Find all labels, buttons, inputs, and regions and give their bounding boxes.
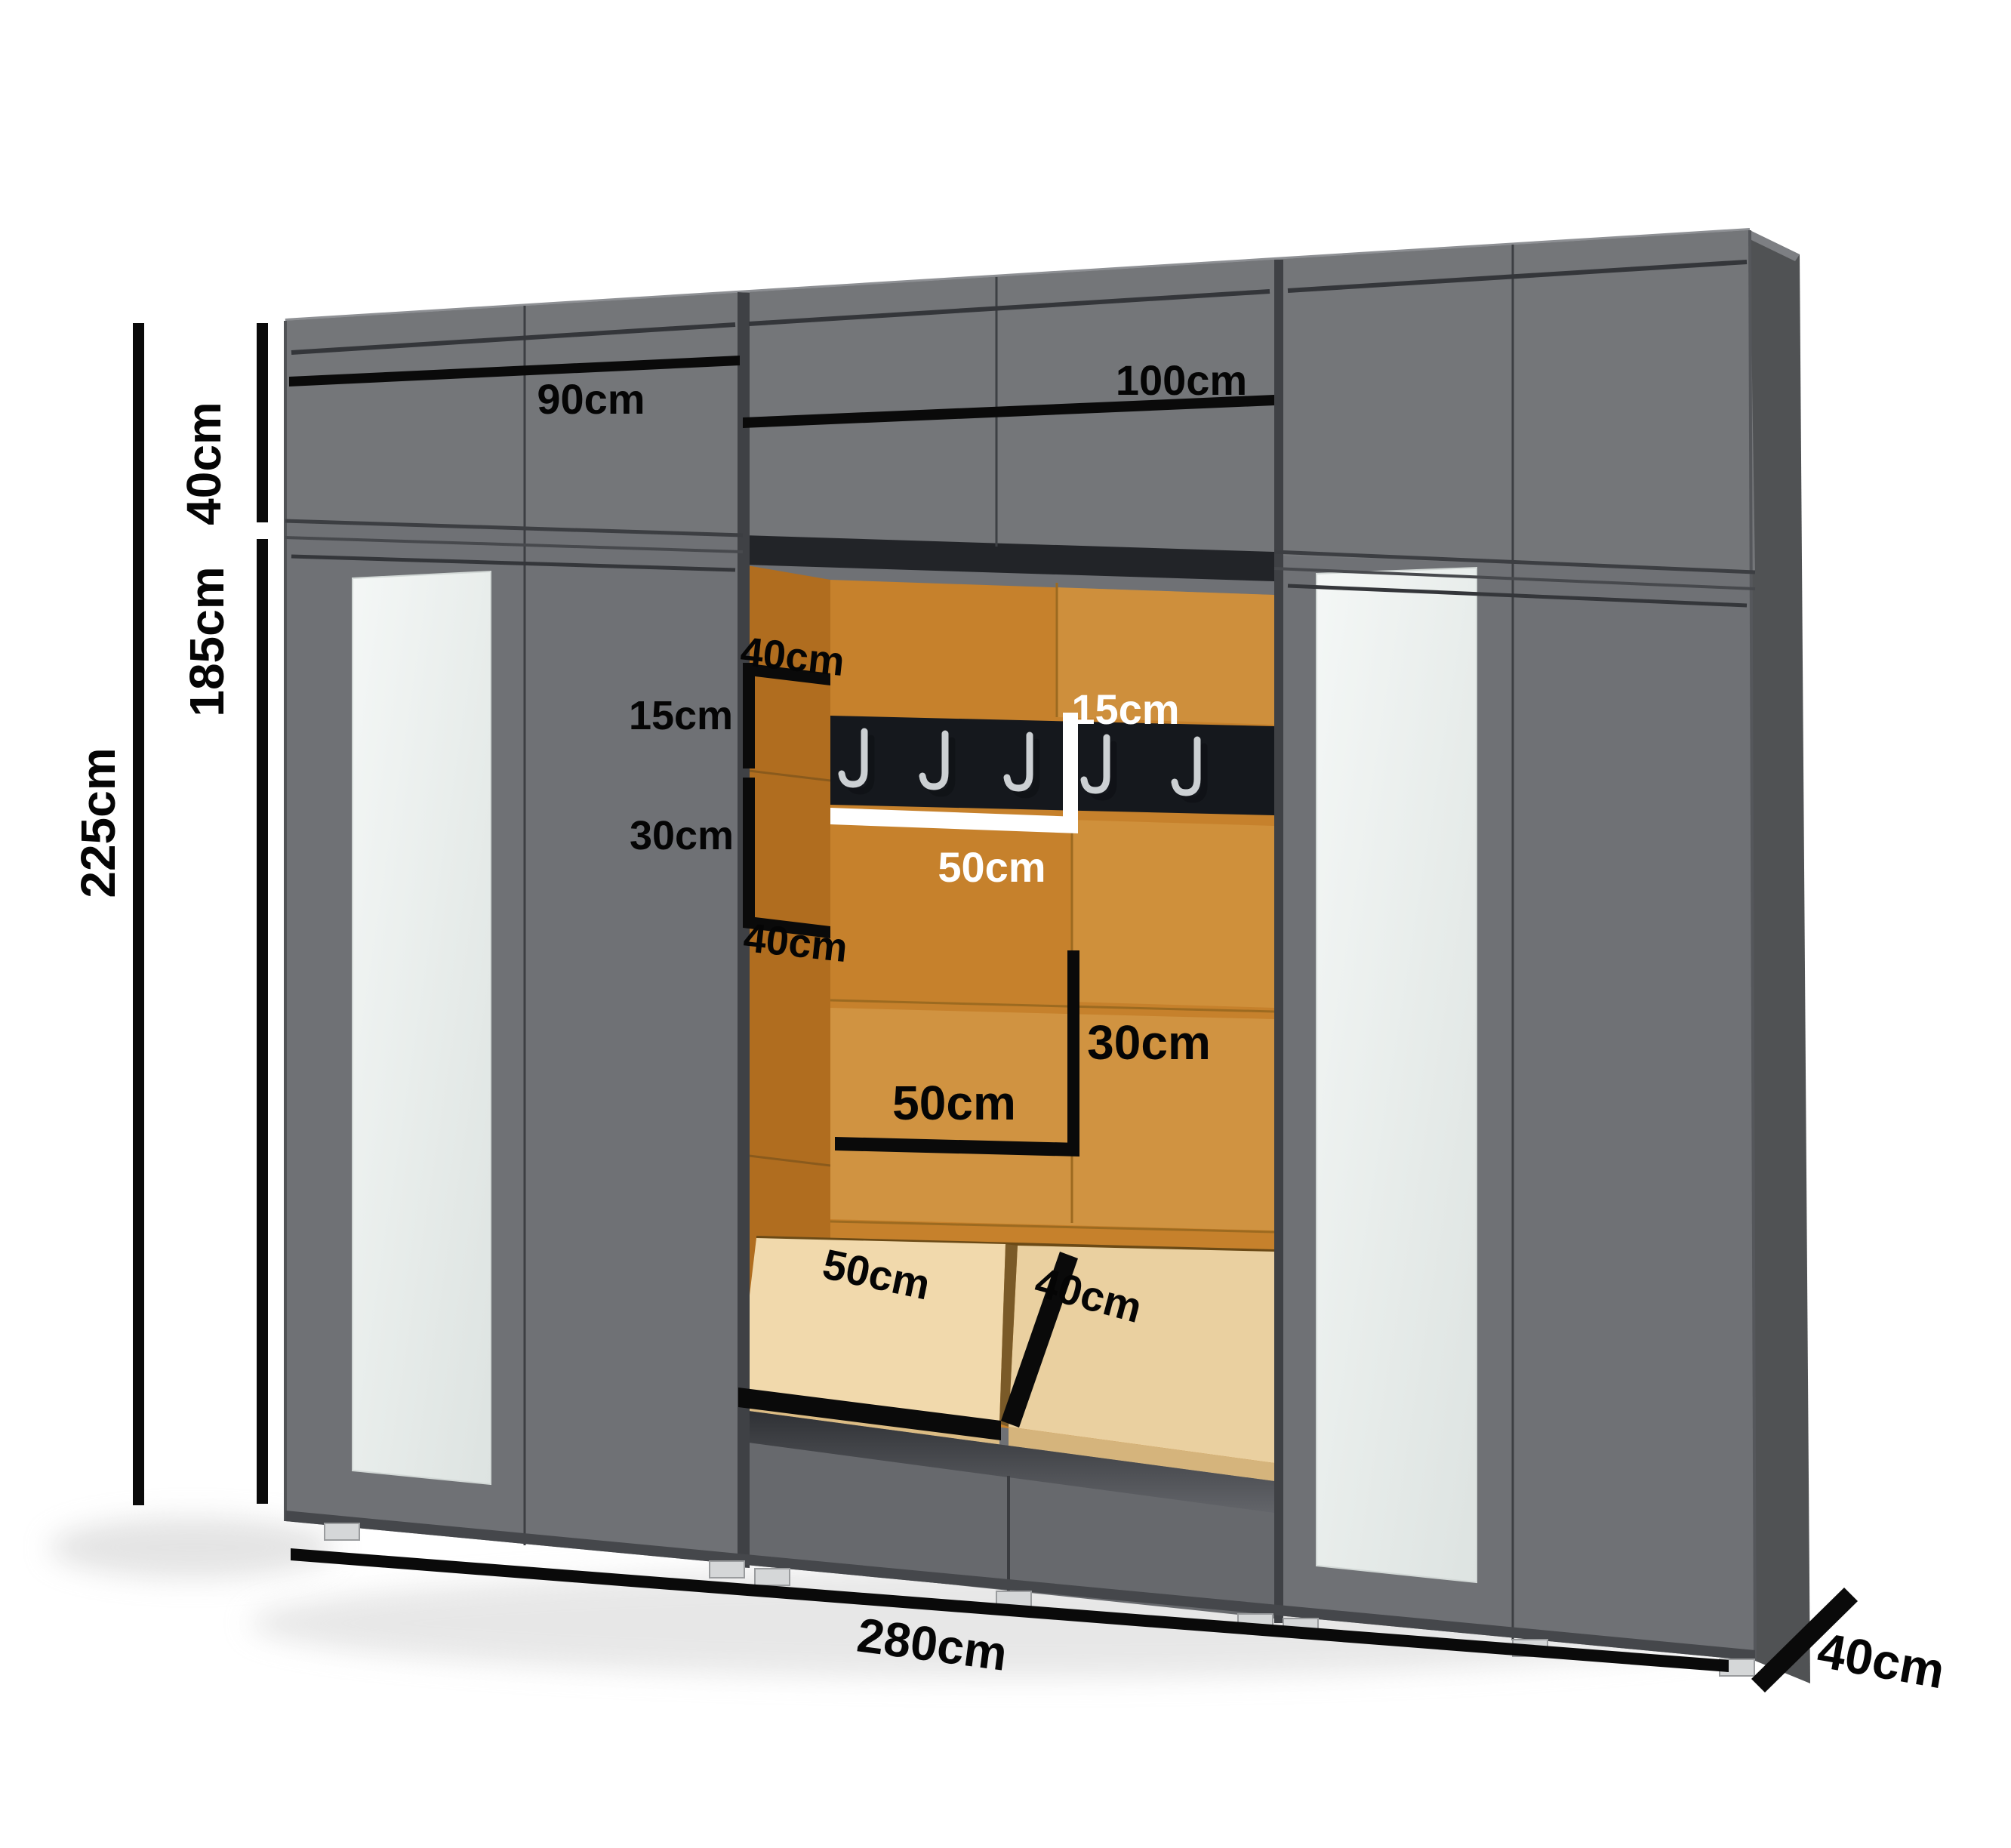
floor-shadow-left [49,1517,336,1578]
top-cabinet-row [285,230,1755,572]
bracket-side-mid-v [743,778,755,917]
foot [755,1569,790,1585]
dim-line-height-lower [257,539,268,1504]
bracket-side-upper-v [743,663,755,768]
mirror-right [1317,568,1477,1582]
label-depth: 40cm [1813,1622,1948,1699]
label-width-center: 100cm [1116,356,1247,404]
label-height-lower: 185cm [180,566,234,716]
mirror-left [353,571,491,1484]
bracket-panel-v [1067,950,1079,1144]
foot [710,1561,744,1578]
label-side-upper-height: 15cm [629,693,733,738]
diagram-svg: 225cm 40cm 185cm 90cm 100cm 280cm 40cm 4… [0,0,2011,1848]
side-panel-right [1750,230,1810,1683]
divider-niche-right [1274,260,1283,1623]
label-panel-width: 50cm [892,1076,1016,1130]
label-panel-height: 30cm [1087,1015,1211,1070]
label-width-left: 90cm [537,375,645,423]
label-height-top: 40cm [177,402,231,525]
label-side-mid-height: 30cm [630,813,734,858]
coat-rail [830,716,1274,815]
foot [325,1523,359,1540]
dim-line-height-total [133,323,144,1505]
label-rail-width: 50cm [938,843,1046,891]
label-height-total: 225cm [71,747,125,898]
wardrobe-unit [285,230,1810,1683]
wardrobe-dimension-diagram: 225cm 40cm 185cm 90cm 100cm 280cm 40cm 4… [0,0,2011,1848]
label-rail-height: 15cm [1071,685,1179,733]
dim-line-height-top [257,323,268,522]
